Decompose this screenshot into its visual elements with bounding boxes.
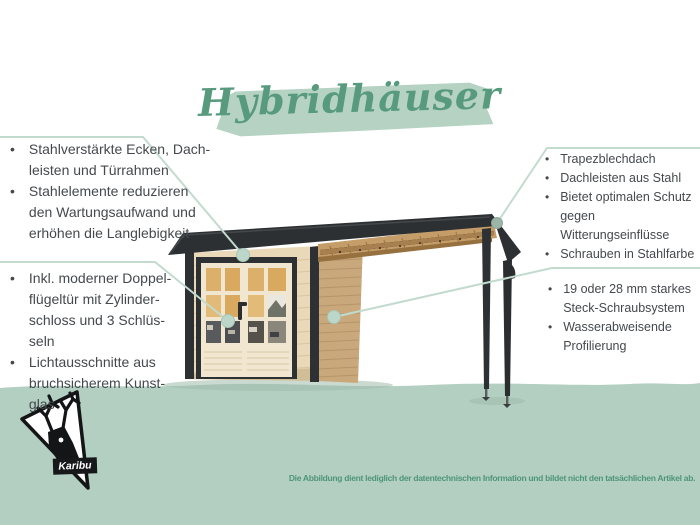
callout-list-left-bottom: • Inkl. moderner Doppel- flügeltür mit Z…: [10, 268, 225, 415]
list-item-text: Stahlverstärkte Ecken, Dach- leisten und…: [29, 139, 210, 181]
list-item: • Inkl. moderner Doppel- flügeltür mit Z…: [10, 268, 225, 352]
list-item: • Stahlverstärkte Ecken, Dach- leisten u…: [10, 139, 225, 181]
list-item: • Trapezblechdach: [545, 150, 697, 169]
callout-list-right-top: • Trapezblechdach • Dachleisten aus Stah…: [545, 150, 697, 264]
list-item-text: Lichtausschnitte aus bruchsicherem Kunst…: [29, 352, 165, 415]
list-item: • Dachleisten aus Stahl: [545, 169, 697, 188]
list-item-text: Dachleisten aus Stahl: [560, 169, 681, 188]
bullet-icon: •: [10, 139, 15, 160]
list-item: • Wasserabweisende Profilierung: [548, 318, 698, 356]
list-item: • Stahlelemente reduzieren den Wartungsa…: [10, 181, 225, 244]
page-title-wrap: Hybridhäuser: [0, 78, 700, 120]
list-item-text: Schrauben in Stahlfarbe: [560, 245, 694, 264]
list-item-text: Stahlelemente reduzieren den Wartungsauf…: [29, 181, 196, 244]
door-handle-nub: [238, 302, 247, 306]
bullet-icon: •: [548, 280, 552, 299]
bullet-icon: •: [545, 245, 549, 264]
callout-list-right-bottom: • 19 oder 28 mm starkes Steck-Schraubsys…: [548, 280, 698, 356]
list-item-text: 19 oder 28 mm starkes Steck-Schraubsyste…: [563, 280, 691, 318]
callout-dot-roof: [492, 218, 503, 229]
canopy-post-rear: [482, 228, 491, 401]
callout-list-left-top: • Stahlverstärkte Ecken, Dach- leisten u…: [10, 139, 225, 244]
bullet-icon: •: [545, 150, 549, 169]
post-shadow: [469, 397, 525, 405]
list-item-text: Inkl. moderner Doppel- flügeltür mit Zyl…: [29, 268, 171, 352]
bullet-icon: •: [10, 352, 15, 373]
list-item: • Schrauben in Stahlfarbe: [545, 245, 697, 264]
list-item-text: Bietet optimalen Schutz gegen Witterungs…: [560, 188, 697, 245]
list-item-text: Trapezblechdach: [560, 150, 655, 169]
callout-dot-door-top: [237, 249, 250, 262]
bullet-icon: •: [548, 318, 552, 337]
corner-post-right: [310, 246, 319, 382]
list-item: • Bietet optimalen Schutz gegen Witterun…: [545, 188, 697, 245]
bullet-icon: •: [545, 188, 549, 207]
list-item-text: Wasserabweisende Profilierung: [563, 318, 672, 356]
list-item: • 19 oder 28 mm starkes Steck-Schraubsys…: [548, 280, 698, 318]
list-item: • Lichtausschnitte aus bruchsicherem Kun…: [10, 352, 225, 415]
disclaimer-text: Die Abbildung dient lediglich der datent…: [287, 473, 697, 483]
bullet-icon: •: [10, 268, 15, 289]
bullet-icon: •: [10, 181, 15, 202]
page-title: Hybridhäuser: [198, 74, 502, 124]
bullet-icon: •: [545, 169, 549, 188]
callout-dot-wall: [328, 311, 341, 324]
brand-label: Karibu: [53, 457, 98, 475]
